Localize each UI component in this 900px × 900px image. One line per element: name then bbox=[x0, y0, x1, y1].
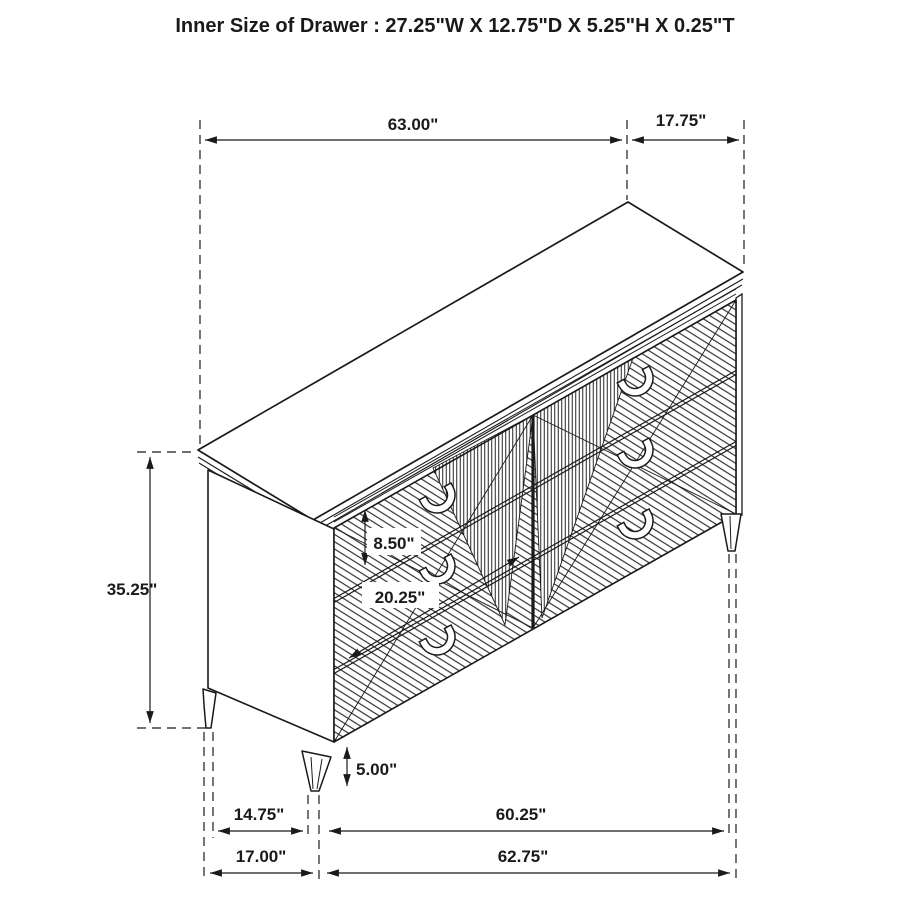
dim-label-top-depth: 17.75" bbox=[656, 111, 707, 130]
dresser-drawing bbox=[198, 202, 743, 791]
dim-label-top-width: 63.00" bbox=[388, 115, 439, 134]
front-left-leg bbox=[302, 751, 331, 791]
dim-label-leg-span-front: 60.25" bbox=[496, 805, 547, 824]
dim-label-leg-inset-depth: 14.75" bbox=[234, 805, 285, 824]
dim-label-base-width: 62.75" bbox=[498, 847, 549, 866]
furniture-dimension-diagram: Inner Size of Drawer : 27.25"W X 12.75"D… bbox=[0, 0, 900, 900]
right-edge-panel bbox=[736, 294, 742, 515]
page-title: Inner Size of Drawer : 27.25"W X 12.75"D… bbox=[175, 15, 734, 37]
dim-label-leg-height: 5.00" bbox=[356, 760, 397, 779]
dresser-isometric-drawing: Inner Size of Drawer : 27.25"W X 12.75"D… bbox=[0, 0, 900, 900]
rear-left-leg bbox=[203, 689, 216, 728]
dim-label-overall-height: 35.25" bbox=[107, 580, 158, 599]
dim-label-base-depth: 17.00" bbox=[236, 847, 287, 866]
dim-label-drawer-width: 20.25" bbox=[375, 588, 426, 607]
dim-label-drawer-front-height: 8.50" bbox=[373, 534, 414, 553]
